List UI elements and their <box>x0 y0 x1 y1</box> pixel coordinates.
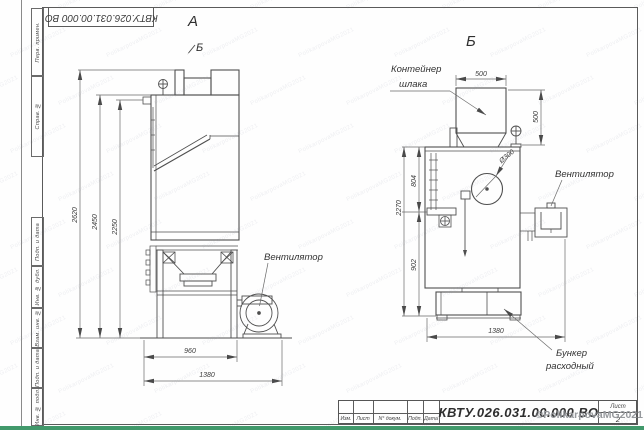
title-block-col-dokum: N° докум. <box>373 413 407 425</box>
frame-field-podp-data-1: Подп. и дата <box>31 217 44 267</box>
title-block-col-list: Лист <box>353 413 373 425</box>
frame-field-label: Инв. № подл. <box>35 388 41 426</box>
bottom-green-border <box>0 426 644 430</box>
frame-field-label: Справ. № <box>35 102 41 129</box>
frame-field-perv-primen: Перв. примен. <box>31 8 44 77</box>
frame-field-podp-data-2: Подп. и дата <box>31 347 44 389</box>
title-block-col-data: Дата <box>423 413 439 425</box>
frame-field-label: Подп. и дата <box>35 349 41 387</box>
frame-field-label: Инв. № дубл. <box>35 268 41 305</box>
title-block-col-izm: Изм. <box>339 413 353 425</box>
frame-field-inv-podl: Инв. № подл. <box>31 387 44 426</box>
drawing-sheet: 2620 2450 2250 960 1380 А Б Вентилятор <box>0 0 644 430</box>
copyright-watermark: ©PolikarpovaMG2021 <box>535 409 643 421</box>
frame-field-sprav-n: Справ. № <box>31 75 44 157</box>
frame-field-label: Подп. и дата <box>35 223 41 261</box>
frame-field-label: Взам. инв. № <box>35 309 41 347</box>
drawing-frame <box>42 7 638 425</box>
frame-field-label: Перв. примен. <box>35 22 41 62</box>
frame-field-vzam-inv: Взам. инв. № <box>31 307 44 349</box>
top-corner-stamp: КВТУ.026.031.00.000 ВО <box>48 7 154 27</box>
frame-field-inv-dubl: Инв. № дубл. <box>31 265 44 309</box>
top-corner-stamp-text: КВТУ.026.031.00.000 ВО <box>45 12 158 23</box>
sheet-outer-border <box>21 0 22 426</box>
title-block-col-podp: Подп. <box>407 413 423 425</box>
